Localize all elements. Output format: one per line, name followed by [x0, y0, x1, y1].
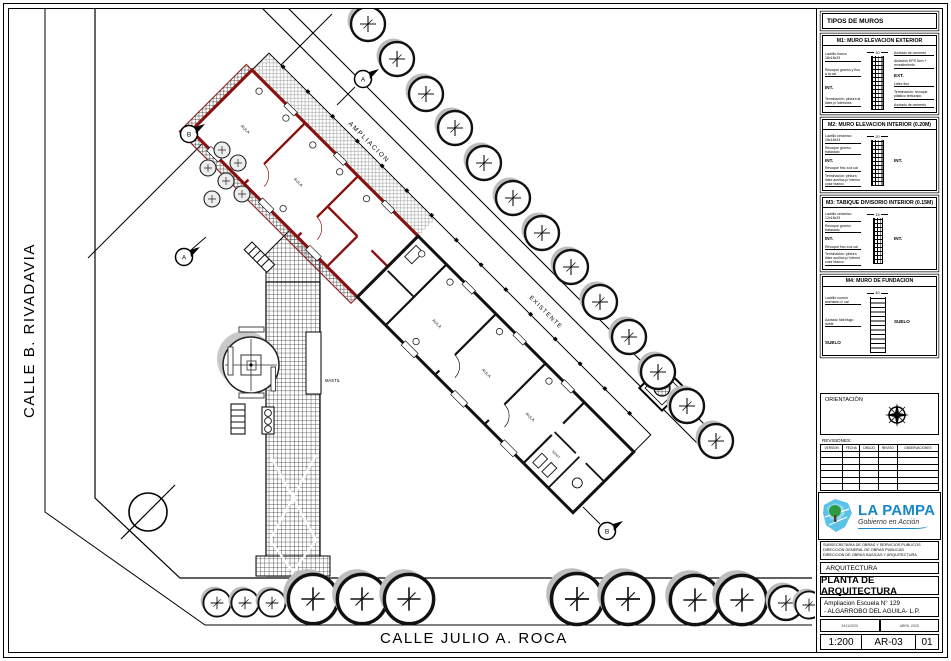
scale-cell: 1:200	[820, 634, 862, 650]
revisions-table: VERSION FECHA DIBUJO REVISO OBSERVACIONE…	[820, 444, 939, 491]
m4-wall-section	[870, 297, 886, 353]
site-plan-svg: MASTIL	[0, 0, 818, 661]
wall-types-header: TIPOS DE MUROS	[822, 13, 937, 29]
m3-left-label: Revoque fino a la cal	[825, 245, 861, 251]
m2-left-label: Revoque grueso fratasado	[825, 146, 861, 156]
logo-tagline: Gobierno en Acción	[858, 519, 935, 526]
m1-ext-label: EXT.	[894, 73, 934, 78]
logo-name: LA PAMPA	[858, 503, 935, 518]
sheet-title: PLANTA DE ARQUITECTURA	[821, 575, 938, 597]
m3-left-label: Revoque grueso fratasado	[825, 224, 861, 234]
dept-line: SUBSECRETARIA DE OBRAS Y SERVICIOS PUBLI…	[823, 543, 936, 548]
building-existing: AULA AULA AULA SANIT.	[355, 235, 635, 515]
project-line2: - ALGARROBO DEL AGUILA- L.P.	[824, 608, 935, 616]
m1-right-label: Látex fino	[894, 82, 934, 88]
drawing-sheet: { "plan": { "street_left": "CALLE B. RIV…	[0, 0, 951, 661]
title-block-panel: TIPOS DE MUROS M1: MURO ELEVACION EXTERI…	[816, 9, 942, 652]
area-box: ARQUITECTURA	[820, 562, 939, 574]
file-date-row: 3411/2020 ABRIL 2025	[820, 619, 939, 632]
marker-letter: B	[187, 131, 191, 138]
mastil-label: MASTIL	[325, 378, 341, 383]
province-map-icon	[821, 497, 855, 535]
orientation-label: ORIENTACIÓN	[825, 397, 863, 403]
m2-int-label: INT.	[825, 158, 861, 163]
logo-swoosh	[858, 526, 928, 529]
wall-types-header-label: TIPOS DE MUROS	[827, 18, 883, 25]
marker-letter: A	[361, 76, 366, 83]
m2-wall-section	[871, 140, 884, 186]
revision-row	[821, 484, 939, 491]
m1-right-label: Aislación EPS 5cm + revestimiento	[894, 59, 934, 69]
m3-dim-label: 15	[866, 211, 888, 218]
m3-left-label: Ladrillo cerámico 12x18x33	[825, 212, 861, 222]
m1-dim-label: 30	[866, 49, 888, 56]
building-band: AULA AULA	[179, 46, 652, 519]
m2-dim-label: 20	[866, 133, 888, 140]
m3-left-label: Terminación: pintura látex acrílica p/ i…	[825, 252, 861, 266]
m4-title: M4: MURO DE FUNDACION	[823, 277, 936, 287]
m1-right-label: Azotado de cemento	[894, 51, 934, 57]
m2-title: M2: MURO ELEVACION INTERIOR (0.20M)	[823, 120, 936, 130]
m2-int-label-right: INT.	[894, 158, 934, 163]
marker-letter: A	[182, 254, 187, 261]
wall-detail-m4: M4: MURO DE FUNDACION Ladrillo común ase…	[822, 276, 937, 356]
flagpole-plot	[306, 332, 321, 394]
expediente-cell: 3411/2020	[820, 619, 880, 632]
tree-row-bottom	[201, 568, 818, 624]
department-lines: SUBSECRETARIA DE OBRAS Y SERVICIOS PUBLI…	[820, 541, 939, 560]
wall-detail-m3: M3: TABIQUE DIVISORIO INTERIOR (0.15M) L…	[822, 197, 937, 269]
la-pampa-logo: LA PAMPA Gobierno en Acción	[818, 492, 941, 540]
orientation-box: ORIENTACIÓN	[820, 393, 939, 435]
m3-wall-section	[873, 218, 883, 264]
m4-suelo-label-right: SUELO	[894, 319, 934, 324]
street-label-left: CALLE B. RIVADAVIA	[21, 243, 38, 418]
m1-left-label: Terminación: pintura al látex p/ interio…	[825, 97, 861, 107]
m3-int-label: INT.	[825, 236, 861, 241]
north-arrow	[121, 485, 175, 539]
wall-detail-m1: M1: MURO ELEVACION EXTERIOR Ladrillo hue…	[822, 35, 937, 113]
area-label: ARQUITECTURA	[826, 565, 877, 572]
dept-line: DIRECCION DE OBRAS BASICAS Y ARQUITECTUR…	[823, 553, 936, 558]
project-box: Ampliacion Escuela N° 129 - ALGARROBO DE…	[820, 597, 939, 617]
wall-detail-m2: M2: MURO ELEVACION INTERIOR (0.20M) Ladr…	[822, 119, 937, 191]
revision-cell: 01	[915, 634, 939, 650]
m1-wall-section	[871, 56, 884, 110]
m1-left-label: Revoque grueso y fino a la cal	[825, 68, 861, 78]
m2-left-label: Terminación: pintura látex acrílica p/ i…	[825, 174, 861, 188]
m4-left-label: Azotado hidrófugo doble	[825, 318, 861, 328]
m1-right-label: Terminación: revoque plástico texturado	[894, 90, 934, 100]
fecha-cell: ABRIL 2025	[880, 619, 940, 632]
marker-letter: B	[605, 528, 609, 535]
m1-right-label: Azotado de cemento	[894, 103, 934, 109]
m1-title: M1: MURO ELEVACION EXTERIOR	[823, 36, 936, 46]
project-line1: Ampliacion Escuela N° 129	[824, 600, 935, 608]
m4-suelo-label: SUELO	[825, 340, 861, 345]
m3-title: M3: TABIQUE DIVISORIO INTERIOR (0.15M)	[823, 198, 936, 208]
m2-left-label: Revoque fino a la cal	[825, 166, 861, 172]
sheet-number-cell: AR-03	[861, 634, 916, 650]
street-label-bottom: CALLE JULIO A. ROCA	[380, 630, 568, 647]
compass-rose-icon	[884, 402, 910, 428]
sheet-title-box: PLANTA DE ARQUITECTURA	[820, 576, 939, 595]
m4-dim-label: 40	[866, 290, 888, 297]
revisions-box: REVISIONES: VERSION FECHA DIBUJO REVISO …	[820, 437, 939, 491]
m3-int-label-right: INT.	[894, 236, 934, 241]
scale-sheet-row: 1:200 AR-03 01	[820, 634, 939, 650]
m2-left-label: Ladrillo cerámico 18x18x33	[825, 134, 861, 144]
m1-left-label: Ladrillo hueco 18x18x33	[825, 52, 861, 62]
m4-left-label: Ladrillo común asentado c/ cal	[825, 296, 861, 306]
revisions-label: REVISIONES:	[822, 438, 939, 443]
m1-int-label: INT.	[825, 85, 861, 90]
